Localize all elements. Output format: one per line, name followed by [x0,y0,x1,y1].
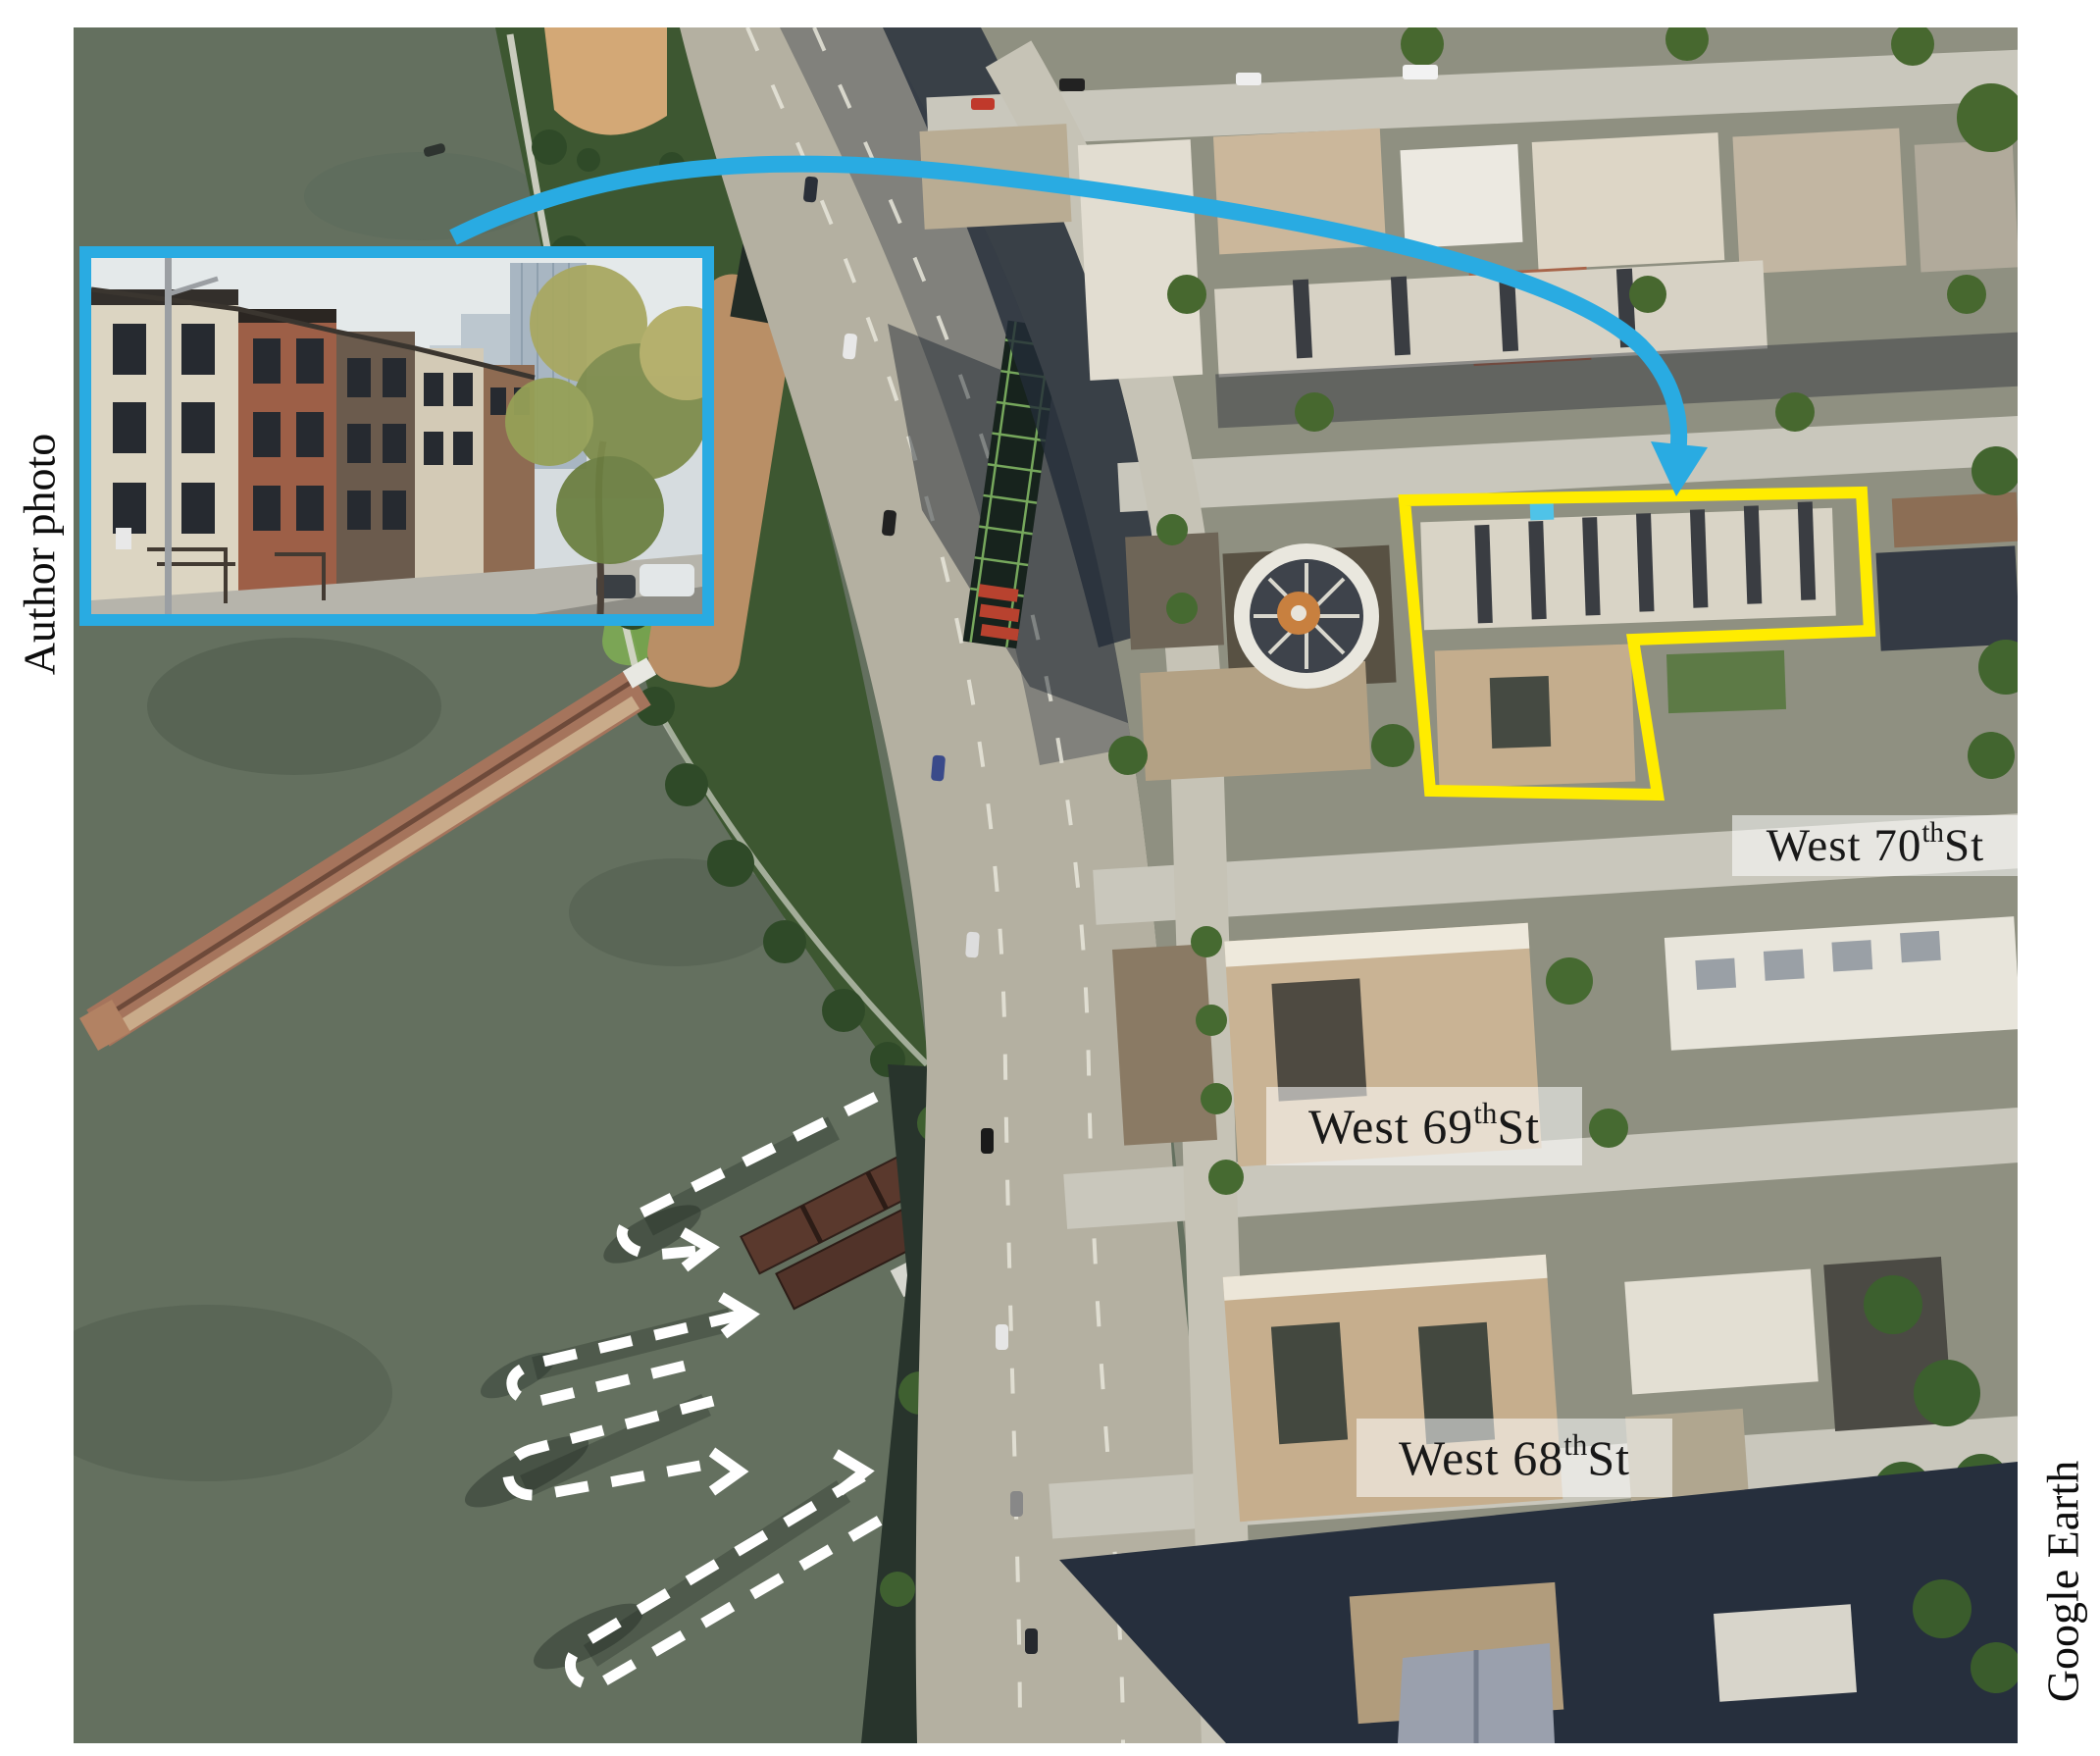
annotated-aerial-figure: West 70th St West 69th St West 68th St A… [0,0,2100,1756]
street-suffix: St [1497,1098,1540,1155]
street-suffix: St [1587,1429,1630,1486]
ordinal-suffix: th [1563,1427,1587,1463]
van [640,564,694,596]
round-building [1234,543,1379,689]
street-name: West 69 [1308,1098,1473,1155]
street-name: West 68 [1399,1429,1563,1486]
street-label-west-69th: West 69th St [1266,1087,1582,1165]
street-label-west-68th: West 68th St [1357,1419,1672,1497]
parking-sign [116,528,131,549]
street-name: West 70 [1767,819,1922,872]
ordinal-suffix: th [1921,817,1944,850]
credit-google-earth: Google Earth [2037,1461,2089,1703]
street-suffix: St [1944,819,1984,872]
ordinal-suffix: th [1473,1096,1497,1131]
street-light-pole [165,258,172,614]
inset-photo [79,246,734,626]
credit-author-photo: Author photo [14,434,66,676]
street-label-west-70th: West 70th St [1732,815,2019,876]
aerial-map [74,27,2018,1743]
